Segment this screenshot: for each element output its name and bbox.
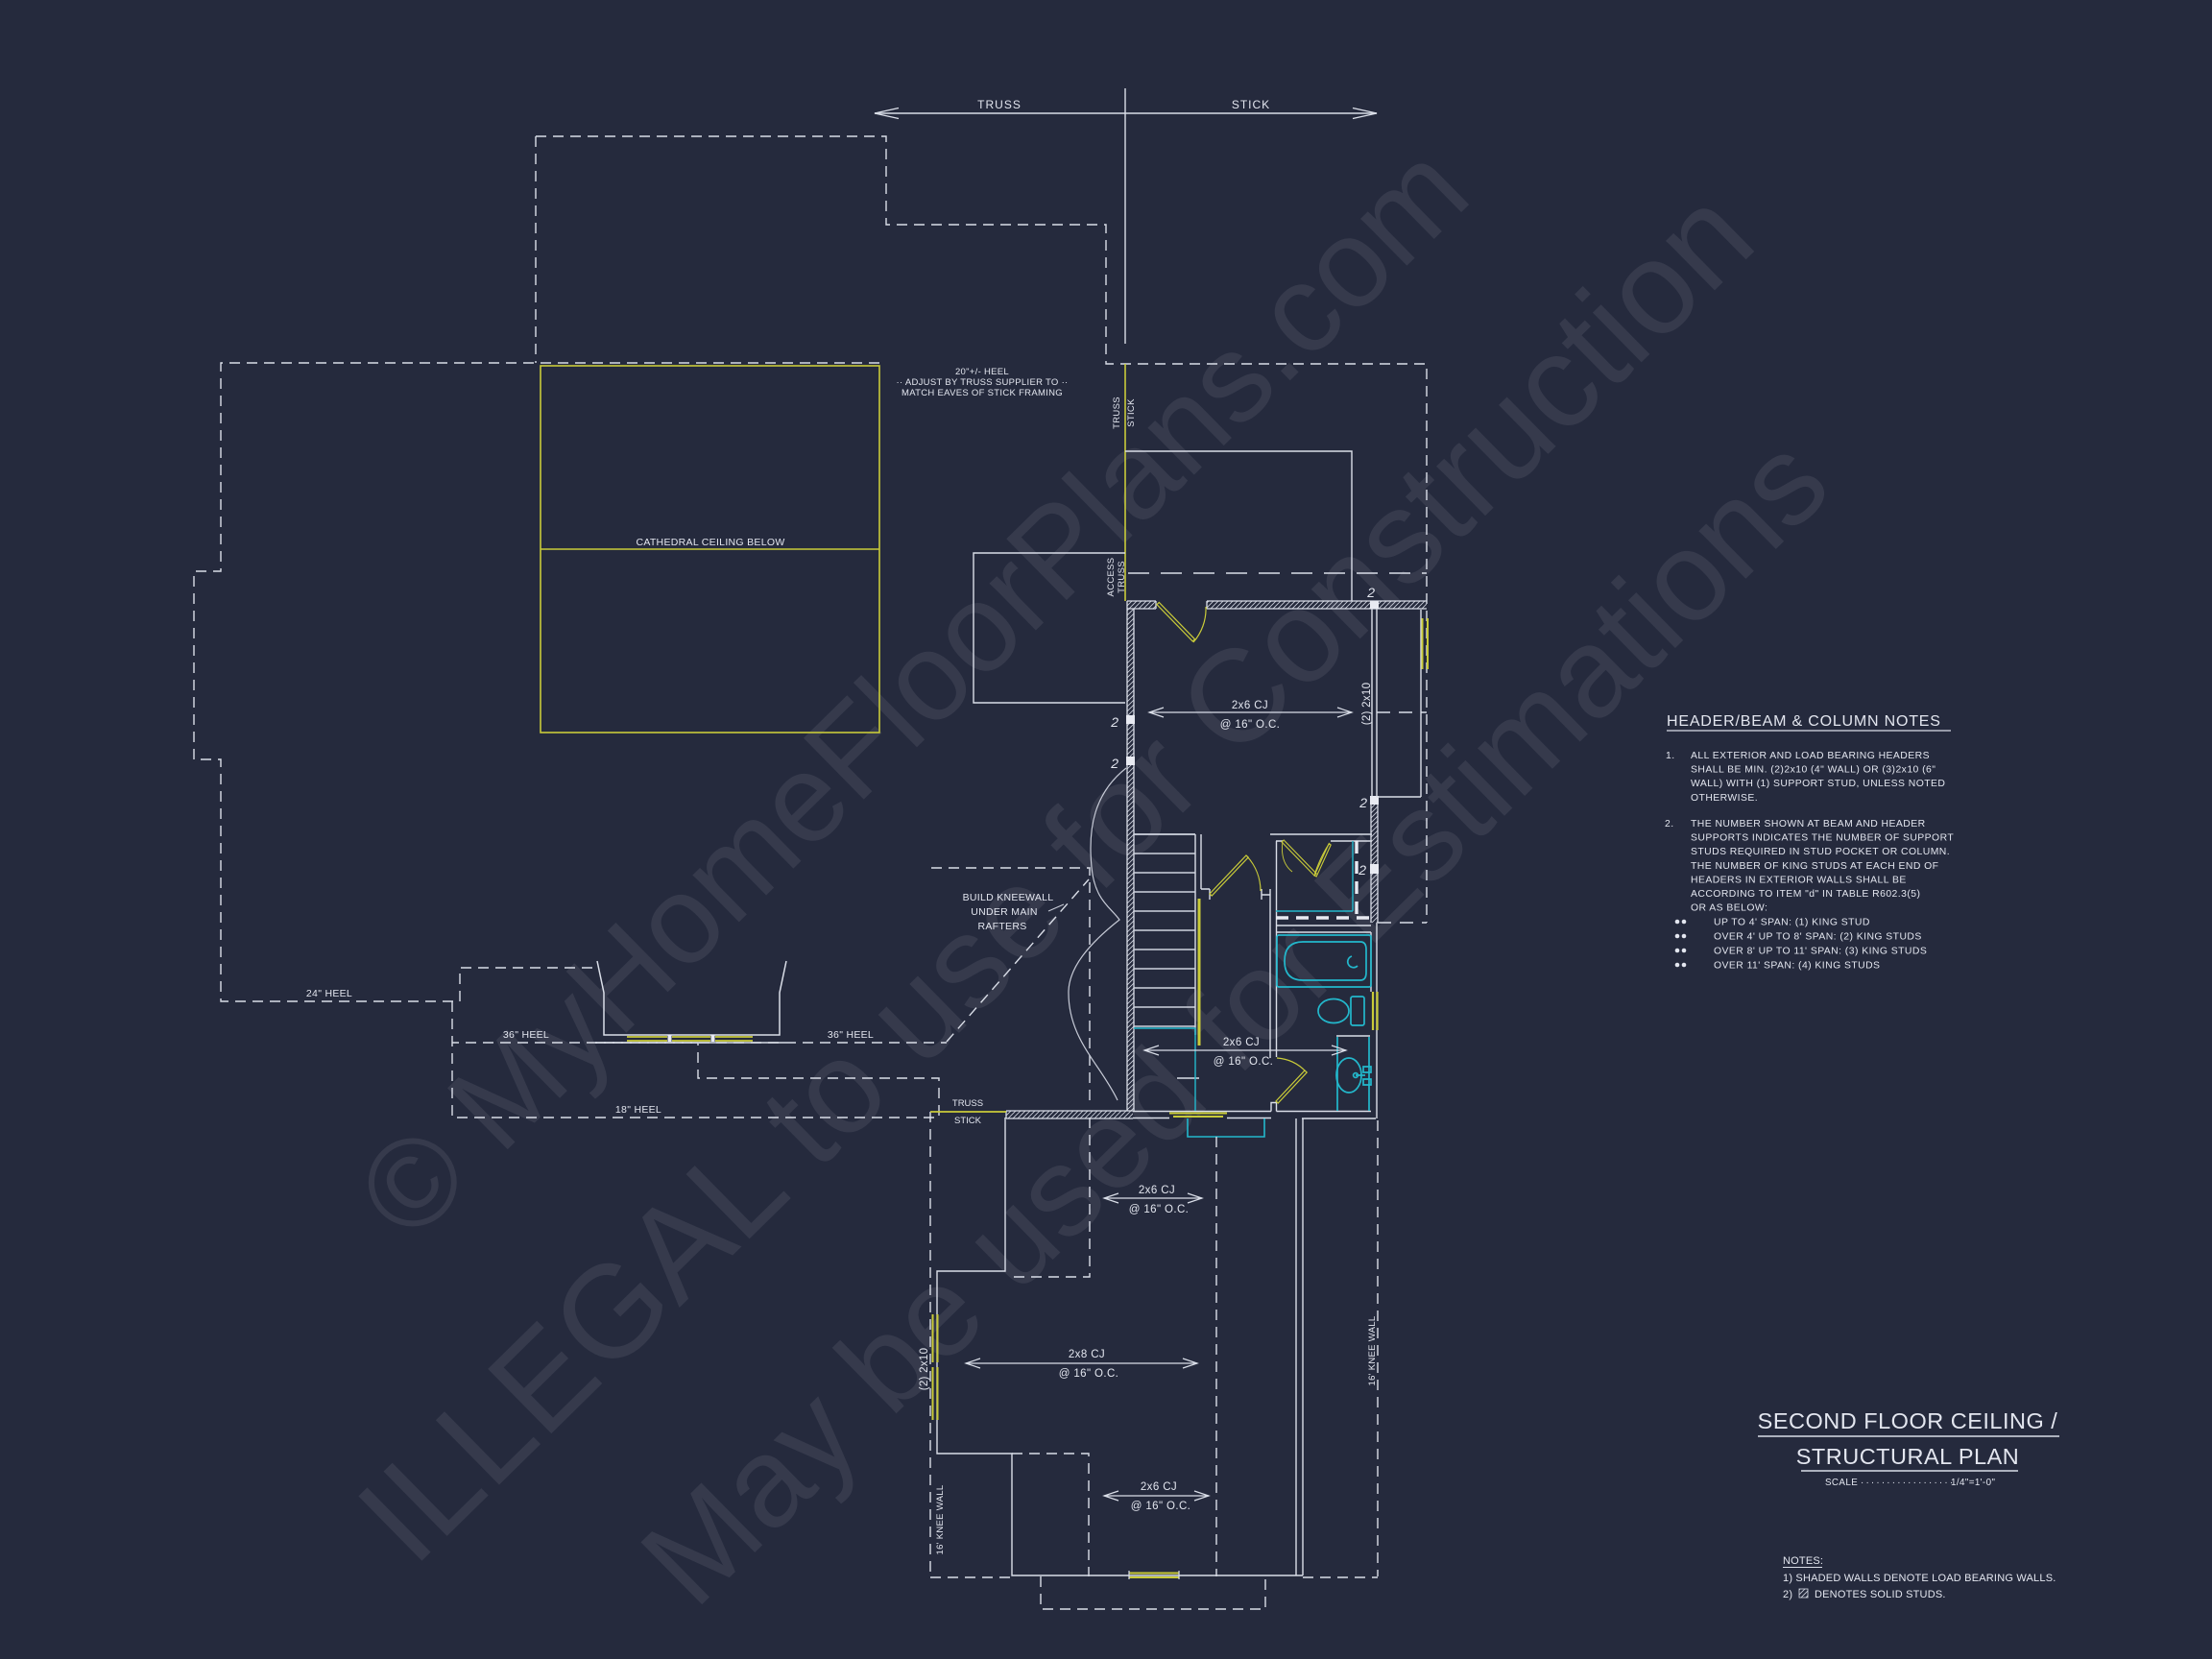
svg-text:UNDER MAIN: UNDER MAIN: [971, 906, 1038, 918]
svg-text:@ 16" O.C.: @ 16" O.C.: [1220, 719, 1281, 731]
svg-text:2: 2: [1110, 756, 1118, 771]
svg-text:·· ADJUST BY TRUSS SUPPLIER TO: ·· ADJUST BY TRUSS SUPPLIER TO ··: [896, 377, 1068, 388]
svg-text:@ 16" O.C.: @ 16" O.C.: [1214, 1056, 1274, 1068]
svg-text:HEADER/BEAM & COLUMN NOTES: HEADER/BEAM & COLUMN NOTES: [1667, 713, 1941, 730]
svg-text:2x6 CJ: 2x6 CJ: [1141, 1481, 1177, 1493]
svg-text:UP TO 4' SPAN: (1) KING STUD: UP TO 4' SPAN: (1) KING STUD: [1714, 918, 1870, 928]
svg-text:@ 16" O.C.: @ 16" O.C.: [1131, 1501, 1191, 1512]
svg-text:STICK: STICK: [1126, 398, 1137, 427]
svg-text:STRUCTURAL PLAN: STRUCTURAL PLAN: [1796, 1444, 2020, 1469]
svg-text:STUDS REQUIRED IN STUD POCKET: STUDS REQUIRED IN STUD POCKET OR COLUMN.: [1691, 847, 1950, 857]
svg-text:HEADERS IN EXTERIOR WALLS SHAL: HEADERS IN EXTERIOR WALLS SHALL BE: [1691, 875, 1907, 885]
svg-text:36" HEEL: 36" HEEL: [828, 1029, 874, 1041]
svg-text:2x8 CJ: 2x8 CJ: [1069, 1349, 1105, 1360]
svg-text:RAFTERS: RAFTERS: [977, 921, 1026, 932]
svg-text:2: 2: [1110, 714, 1118, 730]
svg-text:STICK: STICK: [954, 1116, 982, 1126]
svg-text:THE NUMBER OF KING STUDS AT EA: THE NUMBER OF KING STUDS AT EACH END OF: [1691, 861, 1938, 872]
svg-text:2: 2: [1366, 585, 1375, 600]
svg-text:@ 16" O.C.: @ 16" O.C.: [1129, 1204, 1190, 1215]
svg-text:2x6 CJ: 2x6 CJ: [1223, 1037, 1260, 1048]
svg-text:2: 2: [1358, 795, 1367, 810]
svg-text:TRUSS: TRUSS: [952, 1098, 983, 1109]
svg-text:SCALE: SCALE: [1825, 1478, 1858, 1488]
svg-text:36" HEEL: 36" HEEL: [503, 1029, 549, 1041]
svg-text:SECOND FLOOR CEILING /: SECOND FLOOR CEILING /: [1758, 1408, 2058, 1433]
svg-text:1) SHADED WALLS DENOTE LOAD BE: 1) SHADED WALLS DENOTE LOAD BEARING WALL…: [1783, 1573, 2056, 1584]
svg-text:OVER 8' UP TO 11' SPAN: (3) KI: OVER 8' UP TO 11' SPAN: (3) KING STUDS: [1714, 947, 1927, 957]
svg-text:20"+/- HEEL: 20"+/- HEEL: [955, 367, 1009, 377]
svg-text:OTHERWISE.: OTHERWISE.: [1691, 793, 1758, 804]
svg-text:1/4"=1'-0": 1/4"=1'-0": [1951, 1478, 1995, 1488]
svg-text:(2) 2x10: (2) 2x10: [919, 1348, 930, 1391]
svg-text:CATHEDRAL CEILING BELOW: CATHEDRAL CEILING BELOW: [636, 537, 784, 548]
svg-text:THE NUMBER SHOWN AT BEAM AND H: THE NUMBER SHOWN AT BEAM AND HEADER: [1691, 819, 1926, 829]
svg-text:24" HEEL: 24" HEEL: [306, 988, 352, 999]
svg-text:18" HEEL: 18" HEEL: [615, 1104, 661, 1116]
svg-text:2x6 CJ: 2x6 CJ: [1139, 1185, 1175, 1196]
svg-text:OR AS BELOW:: OR AS BELOW:: [1691, 903, 1767, 914]
svg-text:@ 16" O.C.: @ 16" O.C.: [1059, 1368, 1119, 1380]
svg-text:DENOTES SOLID STUDS.: DENOTES SOLID STUDS.: [1815, 1589, 1946, 1600]
svg-text:OVER 11' SPAN: (4) KING STUDS: OVER 11' SPAN: (4) KING STUDS: [1714, 961, 1880, 972]
svg-text:SUPPORTS INDICATES THE NUMBER: SUPPORTS INDICATES THE NUMBER OF SUPPORT: [1691, 833, 1954, 844]
svg-text:ACCESS: ACCESS: [1106, 558, 1117, 597]
svg-text:TRUSS: TRUSS: [1112, 397, 1122, 429]
svg-text:SHALL BE MIN. (2)2x10 (4" WALL: SHALL BE MIN. (2)2x10 (4" WALL) OR (3)2x…: [1691, 765, 1935, 776]
svg-text:TRUSS: TRUSS: [977, 98, 1022, 111]
svg-text:2): 2): [1783, 1589, 1792, 1600]
svg-text:NOTES:: NOTES:: [1783, 1555, 1823, 1567]
svg-text:STICK: STICK: [1232, 98, 1270, 111]
svg-text:TRUSS: TRUSS: [1117, 561, 1127, 593]
svg-text:2.: 2.: [1665, 819, 1674, 829]
svg-text:OVER 4' UP TO 8' SPAN: (2) KIN: OVER 4' UP TO 8' SPAN: (2) KING STUDS: [1714, 932, 1922, 943]
svg-text:(2) 2x10: (2) 2x10: [1361, 683, 1373, 726]
svg-text:ALL EXTERIOR AND LOAD BEARING: ALL EXTERIOR AND LOAD BEARING HEADERS: [1691, 751, 1930, 761]
svg-text:··················: ··················: [1861, 1478, 1955, 1488]
svg-text:16' KNEE WALL: 16' KNEE WALL: [1367, 1316, 1378, 1386]
svg-text:ACCORDING TO ITEM "d" IN TABLE: ACCORDING TO ITEM "d" IN TABLE R602.3(5): [1691, 889, 1920, 900]
svg-text:2x6 CJ: 2x6 CJ: [1232, 700, 1268, 711]
svg-text:2: 2: [1358, 862, 1366, 878]
svg-text:WALL) WITH (1) SUPPORT STUD, U: WALL) WITH (1) SUPPORT STUD, UNLESS NOTE…: [1691, 779, 1945, 789]
svg-text:MATCH EAVES OF STICK FRAMING: MATCH EAVES OF STICK FRAMING: [902, 388, 1063, 398]
svg-text:1.: 1.: [1666, 751, 1675, 761]
svg-text:16' KNEE WALL: 16' KNEE WALL: [935, 1485, 946, 1555]
svg-text:BUILD KNEEWALL: BUILD KNEEWALL: [963, 892, 1054, 903]
